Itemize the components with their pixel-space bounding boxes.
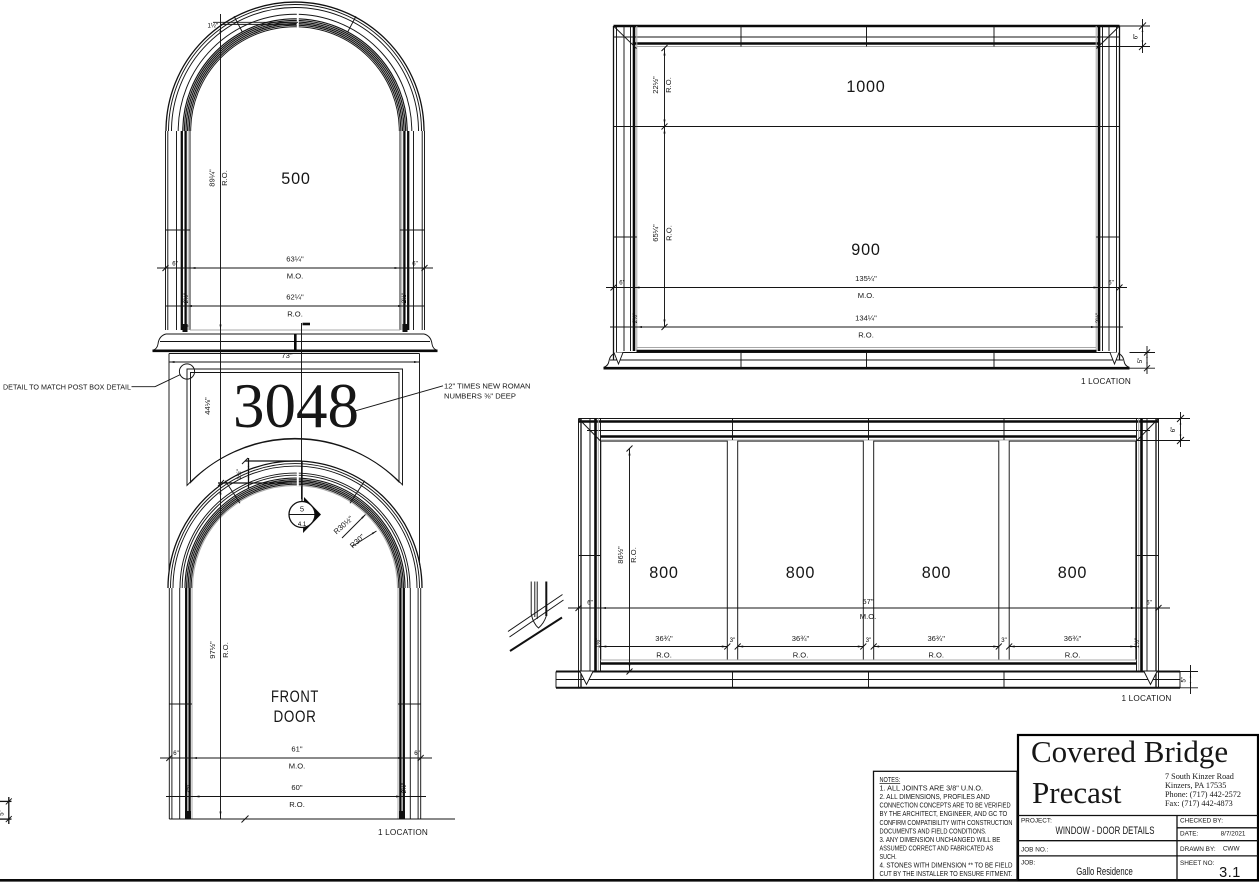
svg-text:R.O.: R.O. xyxy=(289,800,305,809)
svg-text:3048: 3048 xyxy=(233,371,359,441)
svg-text:PROJECT:: PROJECT: xyxy=(1021,817,1052,824)
svg-text:JOB NO.:: JOB NO.: xyxy=(1021,846,1049,853)
svg-text:DOOR: DOOR xyxy=(274,708,317,726)
svg-text:6": 6" xyxy=(619,281,624,287)
svg-text:800: 800 xyxy=(786,564,815,582)
svg-text:6": 6" xyxy=(412,262,417,268)
svg-text:CONNECTION CONCEPTS ARE TO BE: CONNECTION CONCEPTS ARE TO BE VERIFIED xyxy=(880,802,1011,810)
svg-text:57": 57" xyxy=(862,597,873,606)
svg-text:5": 5" xyxy=(0,810,6,815)
svg-text:12" TIMES NEW ROMAN: 12" TIMES NEW ROMAN xyxy=(444,382,531,391)
svg-text:7 South Kinzer Road: 7 South Kinzer Road xyxy=(1165,772,1234,781)
svg-text:6": 6" xyxy=(1146,601,1151,607)
svg-text:900: 900 xyxy=(851,241,880,259)
svg-text:800: 800 xyxy=(649,564,678,582)
svg-text:M.O.: M.O. xyxy=(289,762,305,771)
svg-text:R.O.: R.O. xyxy=(656,651,672,660)
svg-text:R.O.: R.O. xyxy=(665,225,674,241)
svg-text:CUT BY THE INSTALLER TO ENSURE: CUT BY THE INSTALLER TO ENSURE FITMENT. xyxy=(880,870,1013,878)
svg-text:6": 6" xyxy=(172,262,177,268)
svg-text:1 LOCATION: 1 LOCATION xyxy=(1081,377,1131,386)
svg-text:ASSUMED CORRECT AND FABRICATED: ASSUMED CORRECT AND FABRICATED AS xyxy=(880,844,994,852)
svg-text:86½": 86½" xyxy=(616,546,625,564)
svg-text:8/7/2021: 8/7/2021 xyxy=(1221,831,1246,838)
svg-text:5": 5" xyxy=(1182,677,1188,682)
svg-text:1½": 1½" xyxy=(236,469,243,479)
svg-text:2. ALL DIMENSIONS, PROFILES A: 2. ALL DIMENSIONS, PROFILES AND xyxy=(880,793,990,801)
svg-text:JOB:: JOB: xyxy=(1021,859,1035,866)
svg-text:SHEET NO:: SHEET NO: xyxy=(1180,860,1215,867)
svg-text:Gallo Residence: Gallo Residence xyxy=(1076,866,1133,878)
svg-text:6": 6" xyxy=(414,751,419,757)
svg-text:4.1: 4.1 xyxy=(298,522,307,528)
svg-text:R.O.: R.O. xyxy=(858,331,874,340)
svg-text:61": 61" xyxy=(291,745,302,754)
svg-text:6": 6" xyxy=(173,751,178,757)
svg-text:2½": 2½" xyxy=(632,313,639,323)
svg-text:NOTES:: NOTES: xyxy=(880,776,901,784)
svg-text:2½": 2½" xyxy=(1095,313,1102,323)
svg-text:NUMBERS ⅜" DEEP: NUMBERS ⅜" DEEP xyxy=(444,392,516,401)
svg-text:3": 3" xyxy=(866,638,871,644)
svg-text:800: 800 xyxy=(1058,564,1087,582)
svg-text:6": 6" xyxy=(1108,281,1113,287)
svg-text:6": 6" xyxy=(1171,427,1177,432)
svg-text:73": 73" xyxy=(281,351,292,360)
svg-text:DRAWN BY:: DRAWN BY: xyxy=(1180,846,1216,853)
svg-text:3.1: 3.1 xyxy=(1219,865,1241,881)
svg-text:60": 60" xyxy=(291,783,302,792)
svg-text:2½": 2½" xyxy=(185,783,192,793)
svg-text:WINDOW - DOOR DETAILS: WINDOW - DOOR DETAILS xyxy=(1056,825,1155,837)
svg-text:135¼": 135¼" xyxy=(855,274,877,283)
svg-text:CONFIRM COMPATIBILITY WITH CON: CONFIRM COMPATIBILITY WITH CONSTRUCTION xyxy=(880,819,1013,827)
svg-text:1000: 1000 xyxy=(846,78,885,96)
svg-text:2½": 2½" xyxy=(401,783,408,793)
svg-text:63¼": 63¼" xyxy=(286,255,304,264)
svg-text:R.O.: R.O. xyxy=(221,642,230,658)
svg-text:36¾": 36¾" xyxy=(792,634,810,643)
svg-text:36¾": 36¾" xyxy=(927,634,945,643)
svg-text:Phone: (717) 442-2572: Phone: (717) 442-2572 xyxy=(1165,790,1241,799)
svg-text:5": 5" xyxy=(1138,358,1144,363)
svg-text:44⅛": 44⅛" xyxy=(203,397,212,415)
svg-text:1. ALL JOINTS ARE 3/8" U.N.O.: 1. ALL JOINTS ARE 3/8" U.N.O. xyxy=(880,785,984,793)
svg-text:6": 6" xyxy=(587,601,592,607)
svg-text:3. ANY DIMENSION UNCHANGED WI: 3. ANY DIMENSION UNCHANGED WILL BE xyxy=(880,836,1001,844)
svg-text:22½": 22½" xyxy=(651,76,660,94)
svg-text:134¼": 134¼" xyxy=(855,314,877,323)
svg-text:1 LOCATION: 1 LOCATION xyxy=(378,828,428,837)
svg-text:R.O.: R.O. xyxy=(287,310,303,319)
svg-text:62¼": 62¼" xyxy=(286,293,304,302)
svg-text:36¾": 36¾" xyxy=(1064,634,1082,643)
svg-text:R.O.: R.O. xyxy=(664,77,673,93)
svg-text:4. STONES WITH DIMENSION ** T: 4. STONES WITH DIMENSION ** TO BE FIELD xyxy=(880,862,1013,870)
svg-text:M.O.: M.O. xyxy=(860,612,876,621)
svg-text:SUCH.: SUCH. xyxy=(880,853,897,861)
svg-text:1 LOCATION: 1 LOCATION xyxy=(1121,694,1171,703)
svg-text:500: 500 xyxy=(281,170,310,188)
svg-text:1½": 1½" xyxy=(208,23,218,30)
svg-text:3": 3" xyxy=(1001,638,1006,644)
svg-text:BY THE ARCHITECT, ENGINEER, AN: BY THE ARCHITECT, ENGINEER, AND GC TO xyxy=(880,810,1008,818)
svg-text:2½": 2½" xyxy=(401,293,408,303)
svg-text:R.O.: R.O. xyxy=(220,170,229,186)
svg-text:DATE:: DATE: xyxy=(1180,831,1199,838)
svg-text:M.O.: M.O. xyxy=(287,272,303,281)
svg-text:6": 6" xyxy=(1134,34,1140,39)
svg-text:R.O.: R.O. xyxy=(1065,651,1081,660)
svg-text:800: 800 xyxy=(922,564,951,582)
svg-text:Kinzers, PA 17535: Kinzers, PA 17535 xyxy=(1165,781,1226,790)
svg-text:FRONT: FRONT xyxy=(271,688,319,706)
svg-text:36¾": 36¾" xyxy=(655,634,673,643)
svg-text:DETAIL TO MATCH POST BOX DETAI: DETAIL TO MATCH POST BOX DETAIL xyxy=(3,383,131,392)
svg-text:89¼": 89¼" xyxy=(208,169,217,187)
svg-text:Fax: (717) 442-4873: Fax: (717) 442-4873 xyxy=(1165,799,1233,808)
svg-text:R.O.: R.O. xyxy=(629,547,638,563)
svg-text:97½": 97½" xyxy=(208,641,217,659)
svg-text:Covered Bridge: Covered Bridge xyxy=(1031,734,1228,769)
svg-text:1½": 1½" xyxy=(595,638,602,648)
svg-text:Precast: Precast xyxy=(1032,775,1122,810)
svg-text:1½": 1½" xyxy=(1134,638,1141,648)
svg-text:5: 5 xyxy=(300,505,304,514)
svg-text:CHECKED BY:: CHECKED BY: xyxy=(1180,817,1223,824)
svg-text:CWW: CWW xyxy=(1223,846,1241,853)
svg-text:2½": 2½" xyxy=(183,293,190,303)
svg-text:DOCUMENTS AND FIELD CONDITIONS: DOCUMENTS AND FIELD CONDITIONS. xyxy=(880,827,987,835)
svg-text:M.O.: M.O. xyxy=(858,291,874,300)
svg-text:R.O.: R.O. xyxy=(928,651,944,660)
svg-text:65¼": 65¼" xyxy=(651,224,660,242)
svg-text:3": 3" xyxy=(730,638,735,644)
svg-text:R.O.: R.O. xyxy=(793,651,809,660)
